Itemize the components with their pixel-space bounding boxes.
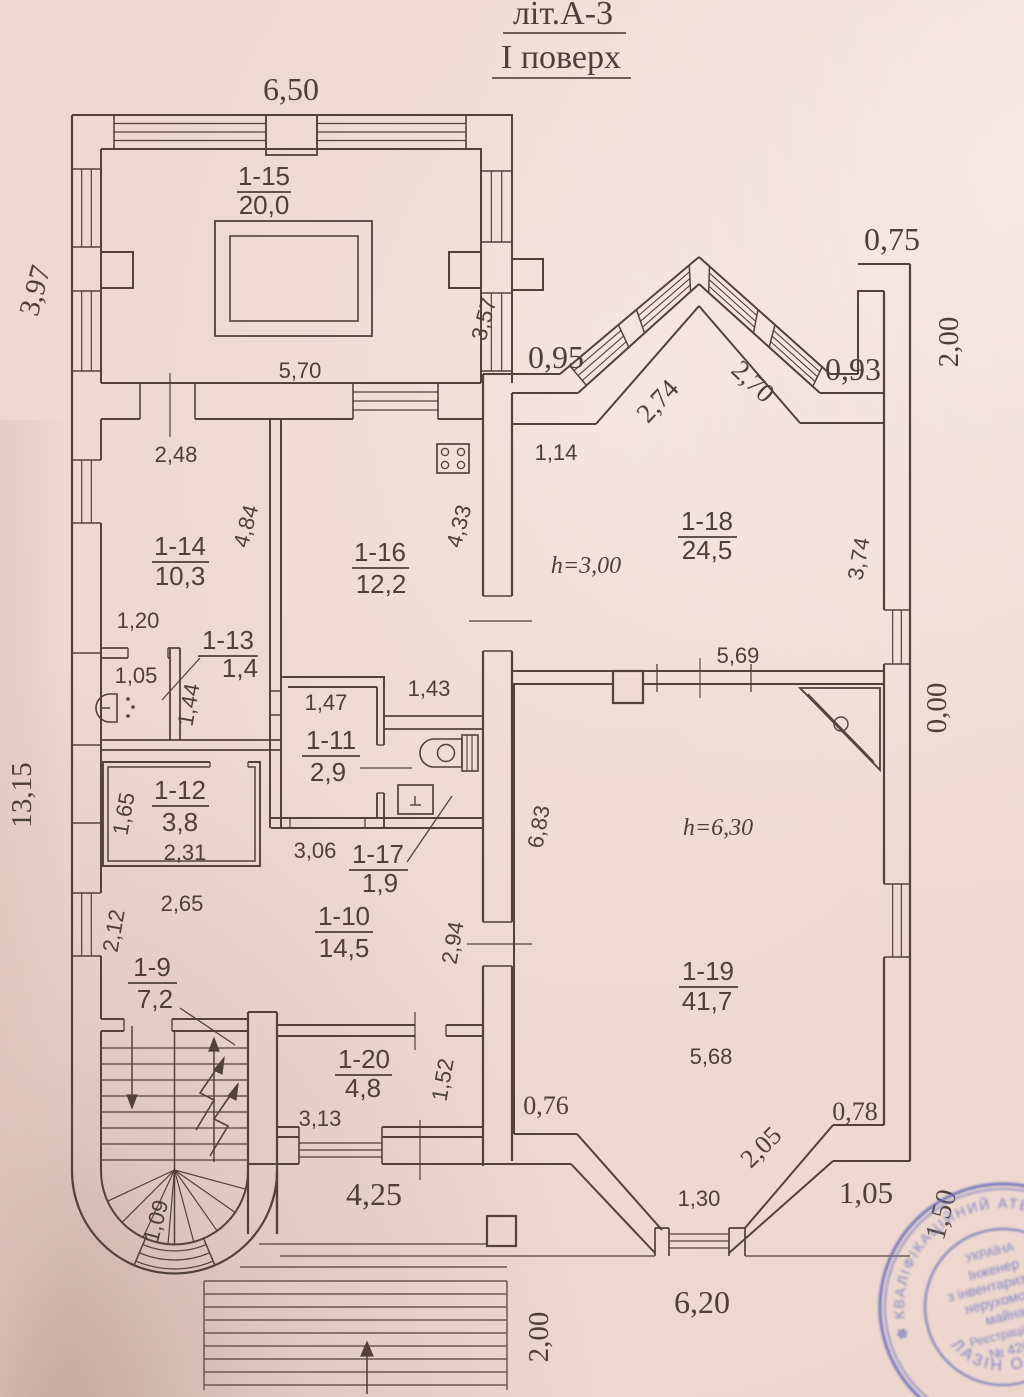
svg-text:1,20: 1,20 bbox=[117, 608, 160, 633]
svg-text:1-10: 1-10 bbox=[318, 901, 370, 931]
svg-text:1-17: 1-17 bbox=[352, 839, 404, 869]
svg-text:13,15: 13,15 bbox=[6, 762, 38, 827]
svg-text:2,65: 2,65 bbox=[161, 891, 204, 916]
svg-text:0,93: 0,93 bbox=[825, 351, 881, 387]
svg-text:2,00: 2,00 bbox=[933, 317, 965, 368]
svg-text:2,9: 2,9 bbox=[310, 757, 346, 787]
svg-text:5,68: 5,68 bbox=[690, 1044, 733, 1069]
svg-text:3,8: 3,8 bbox=[162, 807, 198, 837]
svg-text:1,05: 1,05 bbox=[839, 1175, 893, 1210]
svg-text:1-13: 1-13 bbox=[202, 625, 254, 655]
svg-text:4,8: 4,8 bbox=[345, 1073, 381, 1103]
svg-text:1-9: 1-9 bbox=[133, 952, 171, 982]
svg-text:0,00: 0,00 bbox=[921, 683, 953, 734]
svg-text:5,69: 5,69 bbox=[717, 643, 760, 668]
svg-text:літ.А-3: літ.А-3 bbox=[513, 0, 613, 32]
svg-text:1-18: 1-18 bbox=[681, 506, 733, 536]
svg-text:1,4: 1,4 bbox=[222, 653, 258, 683]
svg-text:1-16: 1-16 bbox=[354, 537, 406, 567]
svg-text:0,95: 0,95 bbox=[528, 339, 584, 375]
svg-text:1-12: 1-12 bbox=[154, 775, 206, 805]
svg-text:41,7: 41,7 bbox=[682, 986, 733, 1016]
svg-text:3,06: 3,06 bbox=[294, 838, 337, 863]
svg-text:0,75: 0,75 bbox=[864, 221, 920, 257]
svg-text:1,30: 1,30 bbox=[678, 1186, 721, 1211]
svg-text:24,5: 24,5 bbox=[682, 535, 733, 565]
svg-text:1-20: 1-20 bbox=[338, 1044, 390, 1074]
svg-text:10,3: 10,3 bbox=[155, 561, 206, 591]
svg-text:2,48: 2,48 bbox=[155, 442, 198, 467]
svg-text:1-14: 1-14 bbox=[154, 531, 206, 561]
svg-text:6,50: 6,50 bbox=[263, 71, 319, 107]
svg-text:3,13: 3,13 bbox=[299, 1106, 342, 1131]
svg-text:1,9: 1,9 bbox=[362, 868, 398, 898]
svg-text:1-19: 1-19 bbox=[682, 956, 734, 986]
svg-text:2,00: 2,00 bbox=[523, 1312, 555, 1363]
svg-text:h=3,00: h=3,00 bbox=[551, 553, 621, 579]
svg-text:1-15: 1-15 bbox=[238, 161, 290, 191]
svg-text:1,43: 1,43 bbox=[408, 676, 451, 701]
svg-text:4,25: 4,25 bbox=[346, 1176, 402, 1212]
svg-text:6,20: 6,20 bbox=[674, 1284, 730, 1320]
svg-text:0,78: 0,78 bbox=[832, 1097, 878, 1126]
svg-text:2,31: 2,31 bbox=[164, 840, 207, 865]
svg-text:1,05: 1,05 bbox=[115, 663, 158, 688]
svg-text:14,5: 14,5 bbox=[319, 933, 370, 963]
svg-text:20,0: 20,0 bbox=[239, 190, 290, 220]
svg-text:7,2: 7,2 bbox=[137, 984, 173, 1014]
svg-text:h=6,30: h=6,30 bbox=[683, 815, 753, 841]
svg-text:12,2: 12,2 bbox=[356, 569, 407, 599]
svg-text:1,47: 1,47 bbox=[305, 690, 348, 715]
svg-text:І поверх: І поверх bbox=[501, 39, 621, 76]
svg-text:1-11: 1-11 bbox=[306, 725, 356, 755]
svg-text:5,70: 5,70 bbox=[279, 358, 322, 383]
svg-text:0,76: 0,76 bbox=[523, 1091, 569, 1120]
svg-text:1,14: 1,14 bbox=[535, 440, 578, 465]
